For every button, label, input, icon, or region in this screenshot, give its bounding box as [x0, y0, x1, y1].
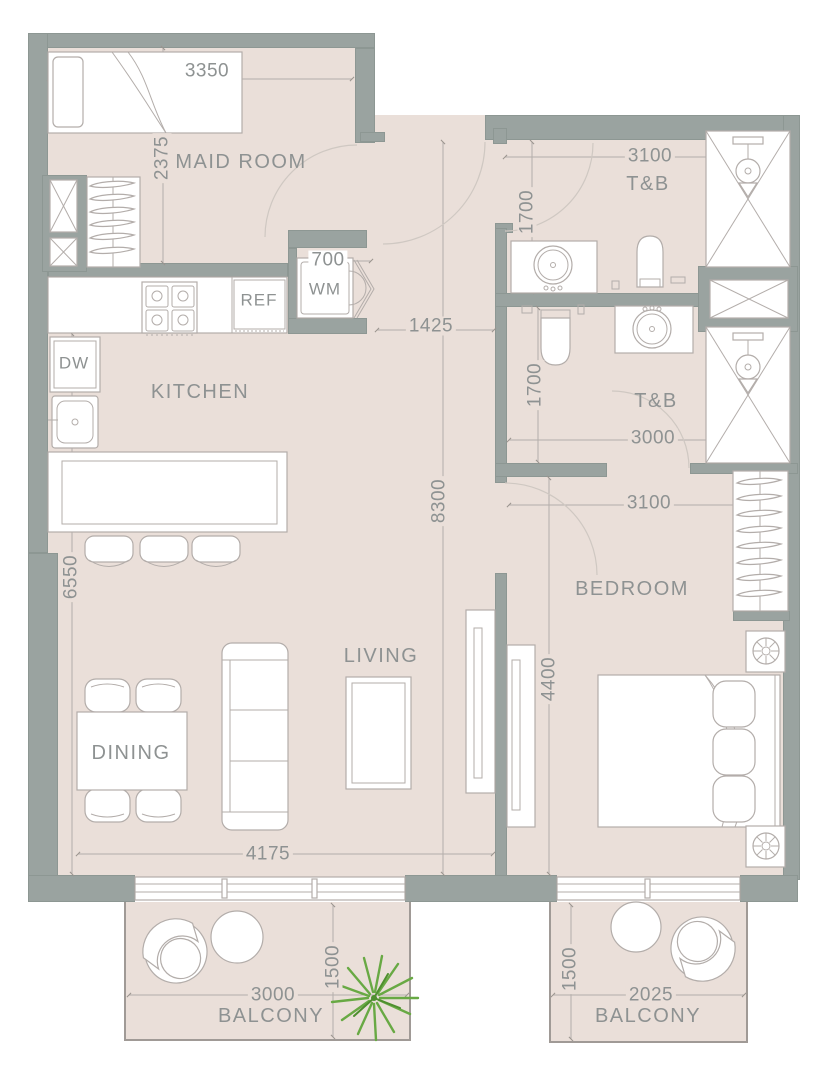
room-label-tb-upper: T&B	[626, 174, 669, 194]
dim-living-depth: 6550	[62, 552, 81, 602]
room-label-living: LIVING	[344, 646, 419, 666]
lounge-chair-right	[659, 905, 747, 993]
plan-linework	[0, 0, 829, 1080]
room-label-dining: DINING	[92, 743, 171, 763]
dim-main-depth: 8300	[430, 476, 449, 526]
dim-balcony-left-width: 3000	[248, 986, 298, 1005]
bedroom-door-arc	[505, 483, 597, 575]
window-living	[135, 877, 405, 900]
window-bedroom	[557, 877, 740, 900]
bar-stools	[85, 536, 240, 567]
room-label-kitchen: KITCHEN	[151, 382, 249, 402]
room-label-tb-lower: T&B	[634, 391, 677, 411]
tv-unit-living	[466, 610, 495, 793]
dim-wm-width: 700	[308, 251, 347, 270]
dim-hall-width: 1425	[406, 317, 456, 336]
room-label-balcony-right: BALCONY	[595, 1006, 701, 1026]
dim-bedroom-width: 3100	[624, 494, 674, 513]
dim-living-width: 4175	[243, 845, 293, 864]
toilet-bottom	[541, 318, 570, 365]
balcony-table-right	[611, 902, 661, 952]
shaft-boxes	[50, 180, 77, 266]
stove	[142, 282, 197, 335]
dim-tb-lower-width: 3000	[628, 429, 678, 448]
tv-unit-bedroom	[507, 645, 535, 827]
bed	[598, 675, 780, 827]
entrance-door-arc	[383, 142, 485, 244]
shower-bottom	[706, 327, 790, 463]
dim-tb-upper-depth: 1700	[518, 187, 537, 237]
sofa	[222, 643, 288, 830]
bathroom-bottom-fixtures	[522, 305, 693, 365]
balcony-table-left	[211, 911, 263, 963]
dim-balcony-right-depth: 1500	[561, 944, 580, 994]
plant	[332, 956, 418, 1040]
kitchen-island	[48, 452, 287, 532]
appliance-label-dw: DW	[59, 355, 89, 372]
dim-tb-lower-depth: 1700	[526, 360, 545, 410]
dim-maid-width: 3350	[182, 62, 232, 81]
dim-bedroom-depth: 4400	[540, 654, 559, 704]
lounge-chair-left	[132, 907, 220, 995]
appliance-label-wm: WM	[309, 281, 341, 298]
bathroom-top-fixtures	[511, 236, 685, 293]
coffee-table	[346, 677, 411, 789]
dim-balcony-right-width: 2025	[626, 986, 676, 1005]
floor-plan: 3350 2375 MAID ROOM 3100 T&B 1700 700 WM…	[0, 0, 829, 1080]
shower-top	[706, 131, 790, 267]
nightstand-bottom	[746, 826, 785, 867]
nightstand-top	[746, 631, 785, 672]
room-label-balcony-left: BALCONY	[218, 1006, 324, 1026]
room-label-bedroom: BEDROOM	[575, 579, 689, 599]
room-label-maid: MAID ROOM	[175, 152, 306, 172]
dim-maid-depth: 2375	[153, 133, 172, 183]
dim-balcony-left-depth: 1500	[324, 942, 343, 992]
appliance-label-ref: REF	[241, 292, 278, 309]
bedroom-wardrobe	[733, 471, 788, 611]
dim-tb-upper-width: 3100	[625, 147, 675, 166]
maid-wardrobe	[87, 177, 140, 267]
shaft-middle	[710, 280, 788, 318]
kitchen-sink	[48, 396, 98, 448]
